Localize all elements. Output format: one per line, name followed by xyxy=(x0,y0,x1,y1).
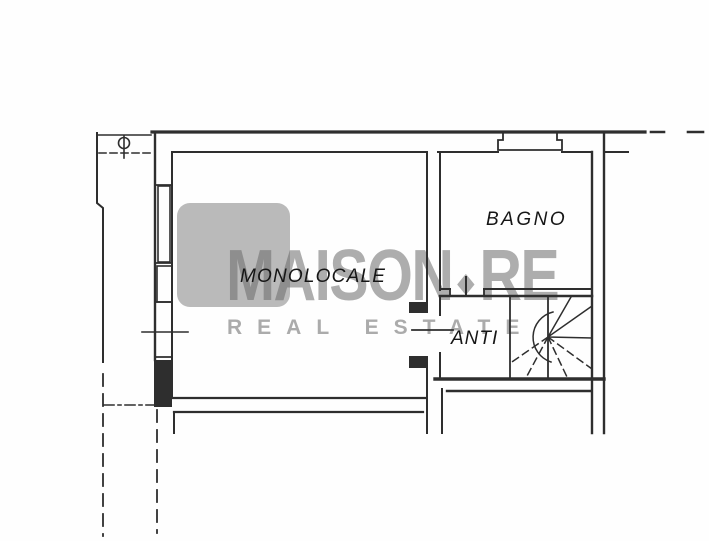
spiral-staircase xyxy=(509,296,592,377)
floor-plan-scan: MAISONRE REAL ESTATE xyxy=(0,0,709,541)
room-label-anti: ANTI xyxy=(451,329,498,348)
room-label-bagno: BAGNO xyxy=(486,210,567,229)
left-wall-windows xyxy=(142,185,188,357)
top-wall xyxy=(152,132,703,152)
chimney-recess xyxy=(498,133,562,150)
left-boundary xyxy=(97,133,157,536)
bottom-and-right-walls xyxy=(435,133,604,433)
bagno-bottom-wall xyxy=(440,277,592,296)
section-marker-icon xyxy=(119,136,130,158)
room-label-monolocale: MONOLOCALE xyxy=(240,267,386,286)
